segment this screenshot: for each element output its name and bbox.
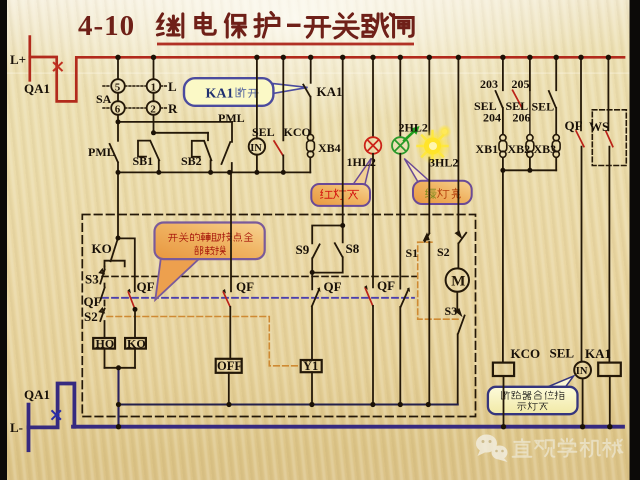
svg-text:QA1: QA1 [24, 387, 50, 402]
svg-text:KO: KO [92, 241, 112, 256]
svg-text:QF: QF [565, 118, 583, 133]
svg-text:S2: S2 [437, 245, 450, 259]
svg-text:5: 5 [115, 81, 121, 93]
svg-text:OFF: OFF [217, 359, 242, 373]
svg-text:1: 1 [151, 81, 157, 93]
svg-text:PML: PML [88, 145, 115, 159]
svg-text:SEL: SEL [252, 125, 275, 139]
svg-text:HQ: HQ [96, 337, 115, 351]
svg-text:Y1: Y1 [303, 359, 318, 373]
svg-text:KCO: KCO [511, 346, 541, 361]
svg-text:SEL: SEL [550, 346, 575, 361]
svg-text:XB3: XB3 [534, 142, 557, 156]
svg-text:3HL2: 3HL2 [429, 156, 458, 170]
svg-text:S3: S3 [85, 272, 99, 287]
svg-text:S3: S3 [445, 304, 458, 318]
svg-text:QA1: QA1 [24, 81, 50, 96]
svg-text:WS: WS [589, 119, 609, 134]
svg-text:6: 6 [115, 103, 121, 115]
svg-text:4-10: 4-10 [78, 10, 135, 42]
svg-text:IN: IN [576, 366, 588, 377]
svg-text:206: 206 [513, 111, 531, 125]
svg-text:SB2: SB2 [181, 154, 202, 168]
svg-text:2HL2: 2HL2 [399, 121, 428, 135]
svg-text:S2: S2 [84, 309, 98, 324]
svg-text:XB2: XB2 [508, 142, 531, 156]
svg-text:R: R [168, 101, 178, 116]
svg-text:XB4: XB4 [318, 141, 341, 155]
svg-text:M: M [451, 274, 465, 290]
svg-text:L: L [168, 79, 177, 94]
svg-text:205: 205 [512, 77, 530, 91]
svg-text:SB1: SB1 [133, 154, 154, 168]
svg-text:XB1: XB1 [476, 142, 499, 156]
svg-text:KA1: KA1 [585, 346, 611, 361]
svg-text:SEL: SEL [532, 100, 555, 114]
svg-text:SA: SA [96, 92, 112, 106]
svg-text:2: 2 [150, 103, 156, 115]
svg-text:KO: KO [127, 337, 146, 351]
svg-text:L+: L+ [10, 52, 26, 67]
svg-text:QF: QF [324, 279, 342, 294]
svg-text:1HL2: 1HL2 [347, 155, 376, 169]
svg-text:QF: QF [84, 294, 102, 309]
svg-text:QF: QF [236, 279, 254, 294]
svg-text:KA1: KA1 [206, 86, 234, 101]
svg-text:S1: S1 [406, 246, 419, 260]
svg-text:PML: PML [218, 111, 245, 125]
svg-text:203: 203 [480, 77, 498, 91]
svg-text:204: 204 [483, 111, 501, 125]
svg-text:S8: S8 [346, 241, 360, 256]
svg-text:IN: IN [250, 143, 262, 154]
svg-text:QF: QF [377, 278, 395, 293]
svg-text:L-: L- [10, 420, 23, 435]
svg-text:KCO: KCO [284, 125, 311, 139]
svg-text:KA1: KA1 [317, 84, 343, 99]
svg-text:S9: S9 [296, 242, 310, 257]
svg-text:QF: QF [137, 279, 155, 294]
